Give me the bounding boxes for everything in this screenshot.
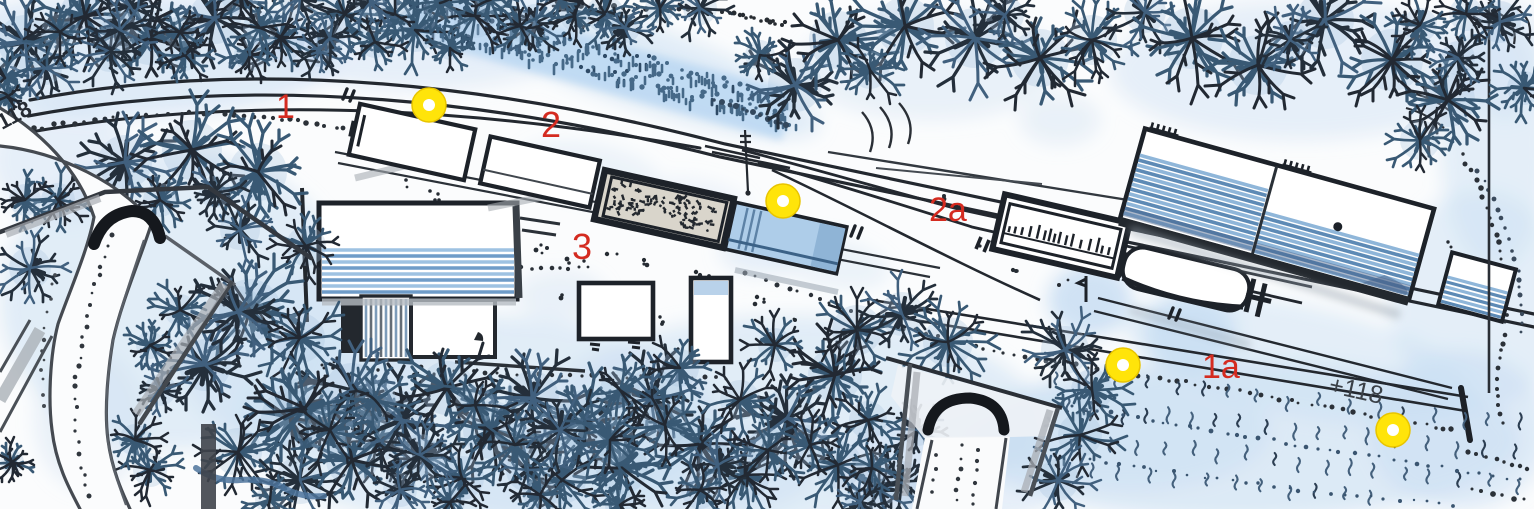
svg-text:2a: 2a	[929, 191, 967, 229]
svg-text:2: 2	[541, 104, 561, 145]
svg-text:1: 1	[276, 88, 295, 126]
svg-text:3: 3	[572, 226, 592, 267]
svg-text:1a: 1a	[1202, 348, 1240, 386]
